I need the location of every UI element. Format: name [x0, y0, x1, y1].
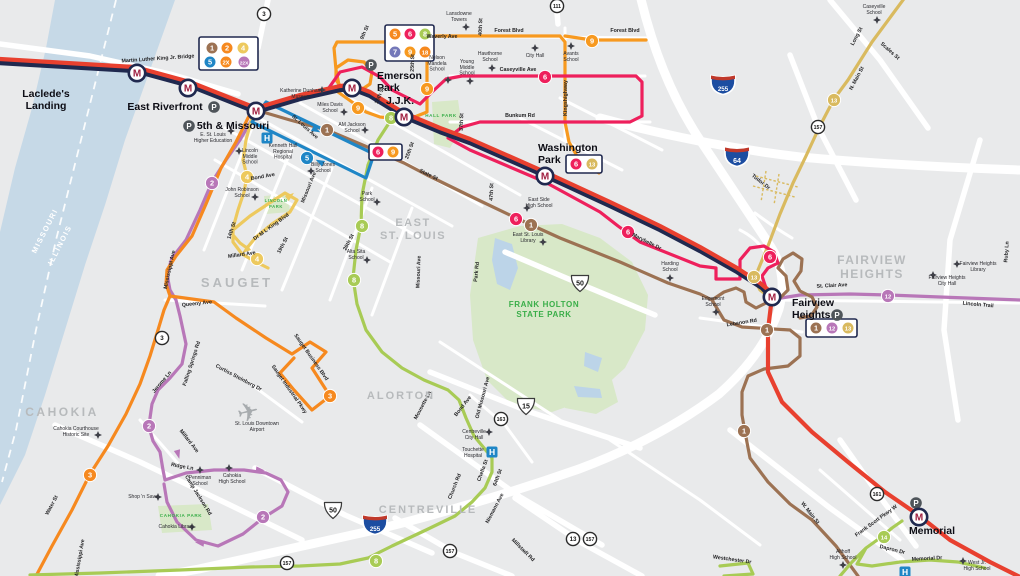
street-label: Millstadt Rd [510, 538, 535, 563]
hospital-icon-letter: H [264, 133, 270, 143]
street-label: Forest Blvd [494, 28, 523, 34]
street-label: Ruby Ln [1003, 241, 1010, 263]
station-routes-box: 613 [566, 155, 602, 173]
station-name: Emerson [377, 70, 422, 82]
area-label: HEIGHTS [840, 267, 904, 281]
street-label: Caseyville Ave [500, 67, 537, 73]
route-badge-number: 22X [240, 61, 249, 67]
state-route-shield-number: 157 [283, 561, 292, 567]
route-badge-number: 12 [829, 327, 835, 333]
route-badge: 9 [585, 34, 598, 47]
state-route-shield-number: 13 [570, 536, 577, 543]
poi-diamond-icon [485, 428, 493, 436]
state-route-shield: 3 [257, 7, 270, 20]
route-badge-number: 8 [389, 114, 393, 123]
route-badge-number: 2 [210, 179, 214, 188]
poi-label: School [344, 128, 359, 134]
station-marker: M [396, 109, 412, 125]
poi-label: Library [520, 238, 536, 244]
park-ride-icon: P [183, 120, 195, 132]
route-badge-number: 1 [742, 427, 746, 436]
route-badge: 8 [347, 273, 360, 286]
station-marker-m: M [184, 84, 192, 95]
state-route-shield: 163 [494, 412, 507, 425]
poi-label: High School [219, 479, 246, 485]
route-badge: 3 [323, 389, 336, 402]
route-badge-number: 2 [261, 513, 265, 522]
route-badge-number: 18 [422, 51, 429, 57]
poi-diamond-icon [567, 42, 575, 50]
poi-label: Hospital [464, 453, 482, 459]
route-badge-number: 1 [529, 221, 533, 230]
poi-label: School [242, 160, 257, 166]
route-badge-number: 1 [814, 324, 818, 333]
state-route-shield-number: 157 [446, 549, 455, 555]
street-label: 9th St [359, 24, 371, 40]
poi: Alta SitaSchool [347, 249, 371, 264]
poi-label: Airport [250, 427, 265, 433]
street-label: Bond Ave [250, 172, 275, 182]
route-badge: 5 [389, 28, 401, 40]
route-badge: 1 [737, 424, 750, 437]
park-label: FRANK HOLTON [509, 300, 579, 309]
street-label: Bunkum Rd [505, 113, 535, 119]
park-ride-icon: P [831, 309, 843, 321]
route-badge: 6 [538, 70, 551, 83]
route-badge-number: 6 [768, 253, 772, 262]
poi-label: School [866, 10, 881, 16]
street-label: Jerome Ln [151, 370, 173, 394]
route-badge: 12 [881, 289, 894, 302]
poi-label: School [315, 168, 330, 174]
route-badge: 13 [827, 93, 840, 106]
station-name: Park [377, 82, 400, 94]
route-badge-number: 1 [765, 326, 769, 335]
station-marker-m: M [915, 513, 923, 524]
route-badge: 2 [142, 419, 155, 432]
route-badge: 1 [524, 218, 537, 231]
interstate-shield-number: 64 [733, 158, 741, 165]
street-label: State St [418, 168, 439, 182]
interstate-shield-number: 255 [370, 526, 381, 533]
route-badge-number: 13 [831, 99, 838, 105]
poi: Kenneth HallRegionalHospital [269, 143, 298, 161]
poi-label: Hospital [274, 155, 292, 161]
station-routes-box: 12452X22X [199, 37, 258, 70]
route-badge: 3 [83, 468, 96, 481]
poi-diamond-icon [873, 16, 881, 24]
poi-label: School [482, 57, 497, 63]
state-route-shield-number: 161 [873, 492, 882, 498]
state-route-shield-number: 3 [262, 11, 266, 18]
poi: St. Louis DowntownAirport [235, 421, 279, 433]
route-badge-number: 5 [208, 58, 212, 67]
route-badge-number: 9 [425, 85, 429, 94]
station-marker: M [180, 80, 196, 96]
park-hall [432, 100, 462, 148]
station-name: 5th & Missouri [197, 120, 269, 132]
street-label: Mississippi Ave [74, 539, 87, 576]
state-route-shield: 3 [155, 331, 168, 344]
route-badge-number: 7 [393, 48, 397, 57]
poi-diamond-icon [531, 44, 539, 52]
route-badge-number: 2X [222, 61, 229, 67]
route-badge-number: 6 [626, 228, 630, 237]
park-label: HALL PARK [425, 113, 457, 118]
state-route-shield: 157 [443, 544, 456, 557]
poi-label: School [563, 57, 578, 63]
route-badge-number: 6 [574, 160, 578, 169]
route-badge-number: 2 [225, 44, 229, 53]
route-badge: 1 [206, 42, 218, 54]
route-badge: 9 [420, 82, 433, 95]
station-name: Washington [538, 142, 598, 154]
poi-label: Towers [451, 17, 467, 23]
park-ride-icon: P [910, 497, 922, 509]
poi: Cahokia CourthouseHistoric Site [53, 426, 102, 439]
us-route-shield-number: 50 [576, 281, 584, 288]
station-marker: M [129, 65, 145, 81]
route-badge-number: 9 [590, 37, 594, 46]
state-route-shield: 13 [566, 532, 579, 545]
hospital-icon: H [487, 447, 498, 458]
route-badge-number: 6 [514, 215, 518, 224]
route-badge-number: 2 [147, 422, 151, 431]
state-route-shield-number: 157 [586, 537, 595, 543]
route-badge: 7 [389, 46, 401, 58]
route-badge-number: 5 [393, 30, 397, 39]
station-marker: M [911, 509, 927, 525]
poi-label: School [359, 197, 374, 203]
park-ride-icon-letter: P [913, 499, 919, 508]
poi-label: Library [970, 267, 986, 273]
state-route-shield: 161 [870, 487, 883, 500]
poi: Shop 'n Save [128, 493, 162, 501]
street-label: Water St [44, 495, 59, 517]
route-badge: 5 [204, 56, 216, 68]
station-name: Park [538, 154, 561, 166]
station-marker: M [248, 103, 264, 119]
poi-label: High School [964, 566, 991, 572]
station-marker: M [344, 80, 360, 96]
poi-label: Cahokia Library [158, 524, 194, 530]
street-label: 47th St [489, 183, 496, 201]
poi-label: City Hall [938, 281, 957, 287]
area-label: EAST [395, 217, 430, 229]
route-badge-number: 13 [589, 163, 596, 169]
route-badge: 14 [877, 530, 890, 543]
route-badge: 4 [237, 42, 249, 54]
route-badge: 13 [586, 158, 598, 170]
poi: LansdowneTowers [446, 11, 472, 31]
park-ride-icon-letter: P [834, 311, 840, 320]
park-ride-icon-letter: P [186, 122, 192, 131]
map-canvas: 255642555050153311115715715716313157161 … [0, 0, 1020, 576]
street-label: Sauget Industrial Pkwy [270, 364, 308, 415]
route-badge-number: 6 [408, 30, 412, 39]
poi: City Hall [526, 44, 545, 59]
route-badge: 2 [221, 42, 233, 54]
route-badge-number: 6 [543, 73, 547, 82]
park-ride-icon: P [208, 101, 220, 113]
street-label: Mississippi Ave [163, 250, 177, 290]
park-ride-icon-letter: P [211, 103, 217, 112]
route-badge-number: 8 [352, 276, 356, 285]
route-badge: 6 [509, 212, 522, 225]
station-name: J.J.K. [386, 95, 414, 107]
area-label: CENTREVILLE [379, 504, 477, 516]
poi-label: High School [830, 555, 857, 561]
street-label: Forest Blvd [610, 28, 639, 34]
route-badge-number: 8 [360, 222, 364, 231]
street-label: St. Clair Ave [816, 282, 847, 290]
poi-label: Higher Education [194, 138, 233, 144]
route-badge-number: 6 [376, 148, 380, 157]
street-label: Kingshighway [563, 80, 569, 116]
poi: East SideHigh School [523, 197, 552, 212]
route-badge-number: 14 [881, 536, 888, 542]
poi-label: School [662, 267, 677, 273]
route-badge: 12 [826, 322, 838, 334]
station-routes-box: 69 [369, 144, 402, 160]
route-badge: 22X [238, 56, 250, 68]
route-badge: 1 [810, 322, 822, 334]
route-badge: 13 [842, 322, 854, 334]
station-name: Heights [792, 309, 831, 321]
state-route-shield-number: 3 [160, 335, 164, 342]
hospital-icon-letter: H [902, 567, 908, 576]
street-label: N. Main St [848, 66, 865, 92]
route-badge-number: 8 [374, 557, 378, 566]
hospital-icon: H [262, 133, 273, 144]
park-ride-icon-letter: P [368, 61, 374, 70]
poi-label: City Hall [465, 435, 484, 441]
transit-map: 255642555050153311115715715716313157161 … [0, 0, 1020, 576]
street-label: Ridge Ln [170, 462, 193, 472]
route-badge-number: 13 [751, 276, 758, 282]
state-route-shield-number: 157 [814, 125, 823, 131]
poi: Cahokia Library [158, 523, 196, 531]
poi: TouchetteHospital [462, 447, 484, 459]
route-badge: 8 [355, 219, 368, 232]
route-badge: 2X [220, 56, 232, 68]
route-badge: 9 [351, 101, 364, 114]
park-label: STATE PARK [516, 310, 571, 319]
state-route-shield-number: 163 [497, 417, 506, 423]
interstate-shield-number: 255 [718, 86, 729, 93]
poi: CaseyvilleSchool [863, 4, 886, 24]
street-label: 40th St [478, 18, 485, 36]
interstate-shield: 255 [711, 76, 735, 95]
state-route-shield: 157 [811, 120, 824, 133]
poi: HawthorneSchool [478, 51, 502, 72]
route-badge: 6 [570, 158, 582, 170]
station-marker-m: M [768, 293, 776, 304]
us-route-shield-number: 50 [329, 508, 337, 515]
state-route-shield: 157 [280, 556, 293, 569]
route-badge: 6 [372, 146, 384, 158]
poi: YoungMiddleSchool [459, 59, 474, 85]
park-label: CAHOKIA PARK [160, 513, 202, 518]
route-badge: 6 [763, 250, 776, 263]
poi: HardingSchool [661, 261, 679, 282]
poi-label: School [322, 108, 337, 114]
area-label: ST. LOUIS [380, 230, 446, 242]
street-label: 25th St [404, 141, 416, 160]
poi-diamond-icon [94, 431, 102, 439]
hospital-icon: H [900, 567, 911, 576]
poi: CahokiaHigh School [219, 464, 246, 485]
us-route-shield: 50 [324, 503, 341, 519]
route-badge: 2 [205, 176, 218, 189]
route-badge: 13 [747, 270, 760, 283]
route-badge: 9 [387, 146, 399, 158]
route-badge-number: 3 [328, 392, 332, 401]
route-badge: 6 [404, 28, 416, 40]
poi-label: Shop 'n Save [128, 494, 158, 500]
street-label: Tudor Dr [750, 173, 771, 191]
poi: CentrevilleCity Hall [462, 428, 493, 441]
route-badge: 2 [256, 510, 269, 523]
poi-label: School [429, 67, 444, 73]
street-label: Sauget Business Blvd [292, 333, 329, 382]
route-badge-number: 12 [885, 295, 891, 301]
state-route-shield: 111 [550, 0, 563, 13]
poi-diamond-icon [251, 193, 259, 201]
poi-diamond-icon [340, 108, 348, 116]
poi-diamond-icon [488, 64, 496, 72]
interstate-shield: 64 [725, 148, 749, 167]
station-name: East Riverfront [127, 101, 203, 113]
route-badge-number: 3 [88, 471, 92, 480]
station-marker-m: M [541, 172, 549, 183]
station-marker-m: M [400, 113, 408, 124]
station-name: Memorial [909, 525, 955, 537]
station-marker-m: M [133, 69, 141, 80]
route-badge-number: 1 [325, 126, 329, 135]
poi-diamond-icon [466, 77, 474, 85]
route-badge: 1 [760, 323, 773, 336]
park-label: LINCOLN [265, 198, 288, 203]
poi-label: School [705, 302, 720, 308]
poi-label: School [459, 71, 474, 77]
area-label: CAHOKIA [25, 405, 99, 419]
station-name: Fairview [792, 297, 835, 309]
street-label: Missouri Ave [415, 256, 422, 289]
route-badge: 1 [320, 123, 333, 136]
state-route-shield-number: 111 [553, 4, 561, 10]
area-label: FAIRVIEW [837, 253, 907, 267]
street-label: Church Rd [447, 473, 463, 500]
route-badge-number: 5 [305, 154, 309, 163]
route-badge-number: 1 [210, 44, 214, 53]
hospital-icon-letter: H [489, 447, 495, 457]
poi-diamond-icon [462, 23, 470, 31]
route-badge-number: 13 [845, 327, 852, 333]
poi-label: School [234, 193, 249, 199]
street-label: 37th St [459, 113, 466, 131]
area-label: SAUGET [201, 275, 273, 290]
us-route-shield-number: 15 [522, 404, 530, 411]
station-marker: M [764, 289, 780, 305]
street-label: 19th St [276, 236, 290, 255]
metrolink-station: MemorialPM [909, 497, 955, 537]
station-marker: M [537, 168, 553, 184]
street-label: Millard Ave [178, 429, 200, 455]
state-route-shield: 157 [583, 532, 596, 545]
poi: NelsonMandelaSchool [427, 55, 452, 84]
poi-label: School [348, 255, 363, 261]
street-label: Curtiss Steinberg Dr [214, 363, 262, 392]
route-badge-number: 9 [356, 104, 360, 113]
poi: Fairview HeightsLibrary [953, 260, 997, 273]
route-badge-number: 9 [391, 148, 395, 157]
park-label: PARK [269, 204, 283, 209]
poi-diamond-icon [666, 274, 674, 282]
street-label: Marybelle Dr [631, 232, 662, 252]
poi-label: City Hall [526, 53, 545, 59]
station-name: Landing [26, 100, 67, 112]
station-name: Laclede's [22, 88, 70, 100]
poi-label: Museum [291, 94, 310, 100]
station-marker-m: M [252, 107, 260, 118]
park-ride-icon: P [365, 59, 377, 71]
route-badge: 8 [369, 554, 382, 567]
poi-diamond-icon [363, 256, 371, 264]
street-label: Waverly Ave [427, 34, 458, 40]
area-label: ALORTON [367, 390, 435, 402]
station-marker-m: M [348, 84, 356, 95]
poi-label: High School [526, 203, 553, 209]
poi-label: Historic Site [63, 432, 90, 438]
station-routes-box: 11213 [806, 319, 857, 337]
